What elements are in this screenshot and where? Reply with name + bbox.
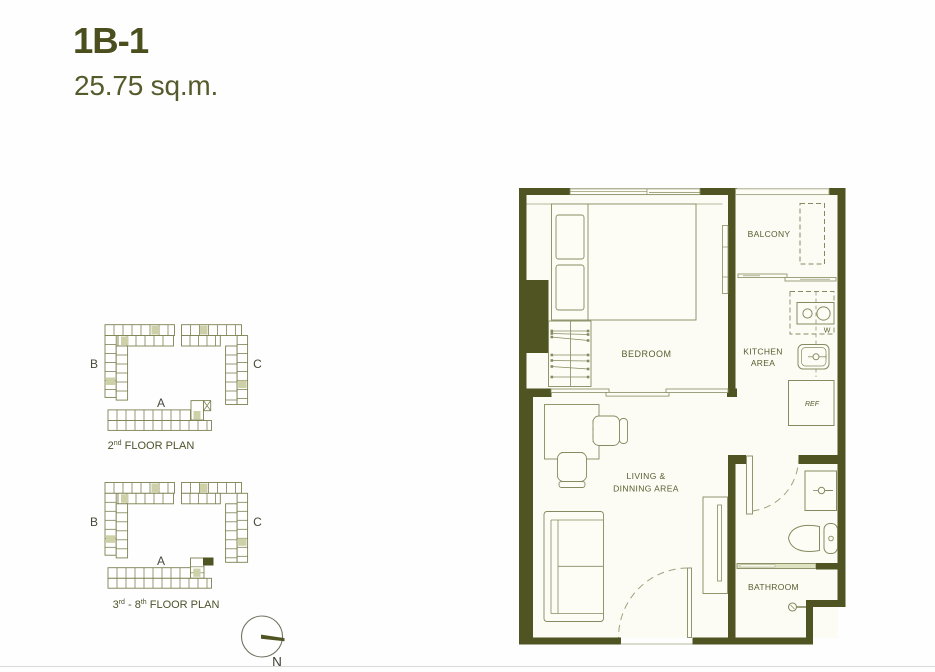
svg-text:AREA: AREA — [751, 358, 775, 368]
svg-text:3rd - 8th FLOOR PLAN: 3rd - 8th FLOOR PLAN — [113, 599, 220, 611]
svg-text:A: A — [157, 554, 165, 568]
svg-text:BEDROOM: BEDROOM — [621, 349, 671, 359]
svg-text:LIVING &: LIVING & — [626, 471, 665, 481]
svg-text:BALCONY: BALCONY — [748, 229, 791, 239]
svg-text:BATHROOM: BATHROOM — [748, 582, 799, 592]
svg-text:B: B — [90, 357, 98, 371]
svg-text:W: W — [824, 328, 831, 335]
svg-text:2nd FLOOR PLAN: 2nd FLOOR PLAN — [108, 440, 195, 452]
svg-text:DINNING AREA: DINNING AREA — [613, 484, 679, 494]
svg-text:N: N — [272, 655, 282, 670]
svg-text:A: A — [157, 396, 165, 410]
svg-text:REF: REF — [805, 401, 820, 408]
svg-text:B: B — [90, 515, 98, 529]
svg-text:KITCHEN: KITCHEN — [743, 347, 782, 357]
svg-text:C: C — [253, 357, 262, 371]
svg-text:C: C — [253, 515, 262, 529]
